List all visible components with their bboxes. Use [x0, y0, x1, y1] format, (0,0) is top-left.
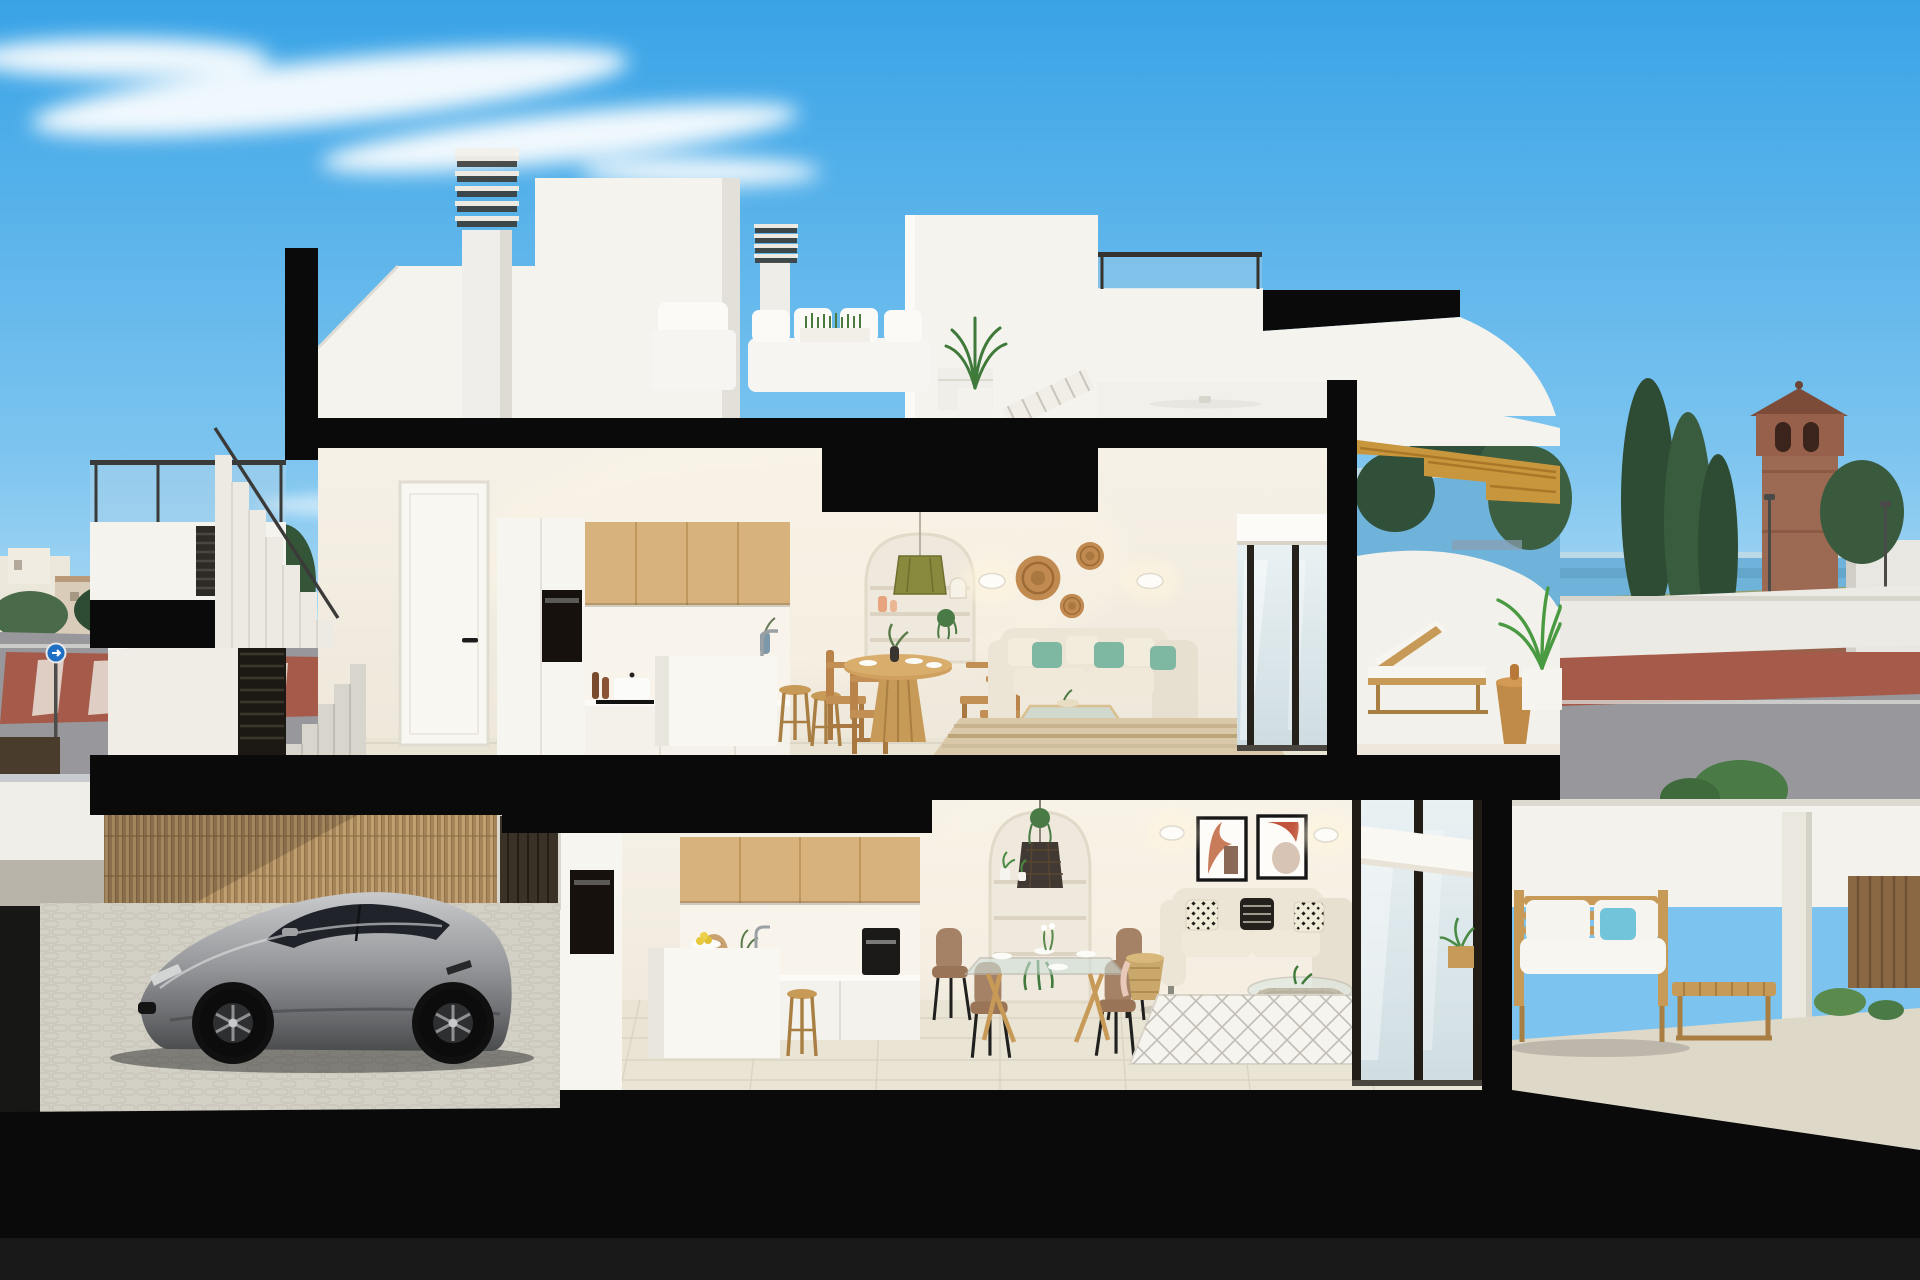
sconce-lower-left [1146, 813, 1198, 853]
ground-base [0, 1238, 1920, 1280]
entry-gate [238, 642, 286, 757]
terrace-upper [1355, 408, 1572, 760]
sconce-lower-right [1300, 815, 1352, 855]
roof-glass-railing [1098, 252, 1262, 289]
fence-brown [1848, 876, 1920, 988]
roof-slab [285, 418, 1357, 448]
blue-pillow [1600, 908, 1636, 940]
mullion-upper [1327, 380, 1357, 757]
door-handle [462, 638, 478, 643]
architectural-render [0, 0, 1920, 1280]
mullion-lower [1482, 800, 1512, 1090]
roof-beam-deep [822, 446, 1098, 512]
chimney-1 [455, 148, 519, 422]
car-wheel-front [199, 989, 267, 1057]
sofa-pillows-lower [1186, 898, 1324, 932]
terrace-side-wall [1782, 812, 1810, 1050]
coffee-machine [862, 928, 900, 975]
porch-parapet [1098, 288, 1263, 382]
entry-door [400, 482, 488, 745]
mid-slab [90, 755, 1560, 800]
car-wheel-rear [419, 989, 487, 1057]
sliding-door-upper [1237, 514, 1327, 751]
sconce-upper-right [1120, 559, 1180, 603]
scene-canvas [0, 0, 1920, 1280]
entry-wall [108, 636, 238, 757]
outdoor-sofa [1510, 890, 1690, 1057]
roof-planter [800, 328, 870, 342]
roller-blind-upper [1237, 514, 1327, 544]
car-mirror [282, 928, 298, 936]
sconce-upper-left [962, 559, 1022, 603]
side-path [0, 860, 108, 910]
